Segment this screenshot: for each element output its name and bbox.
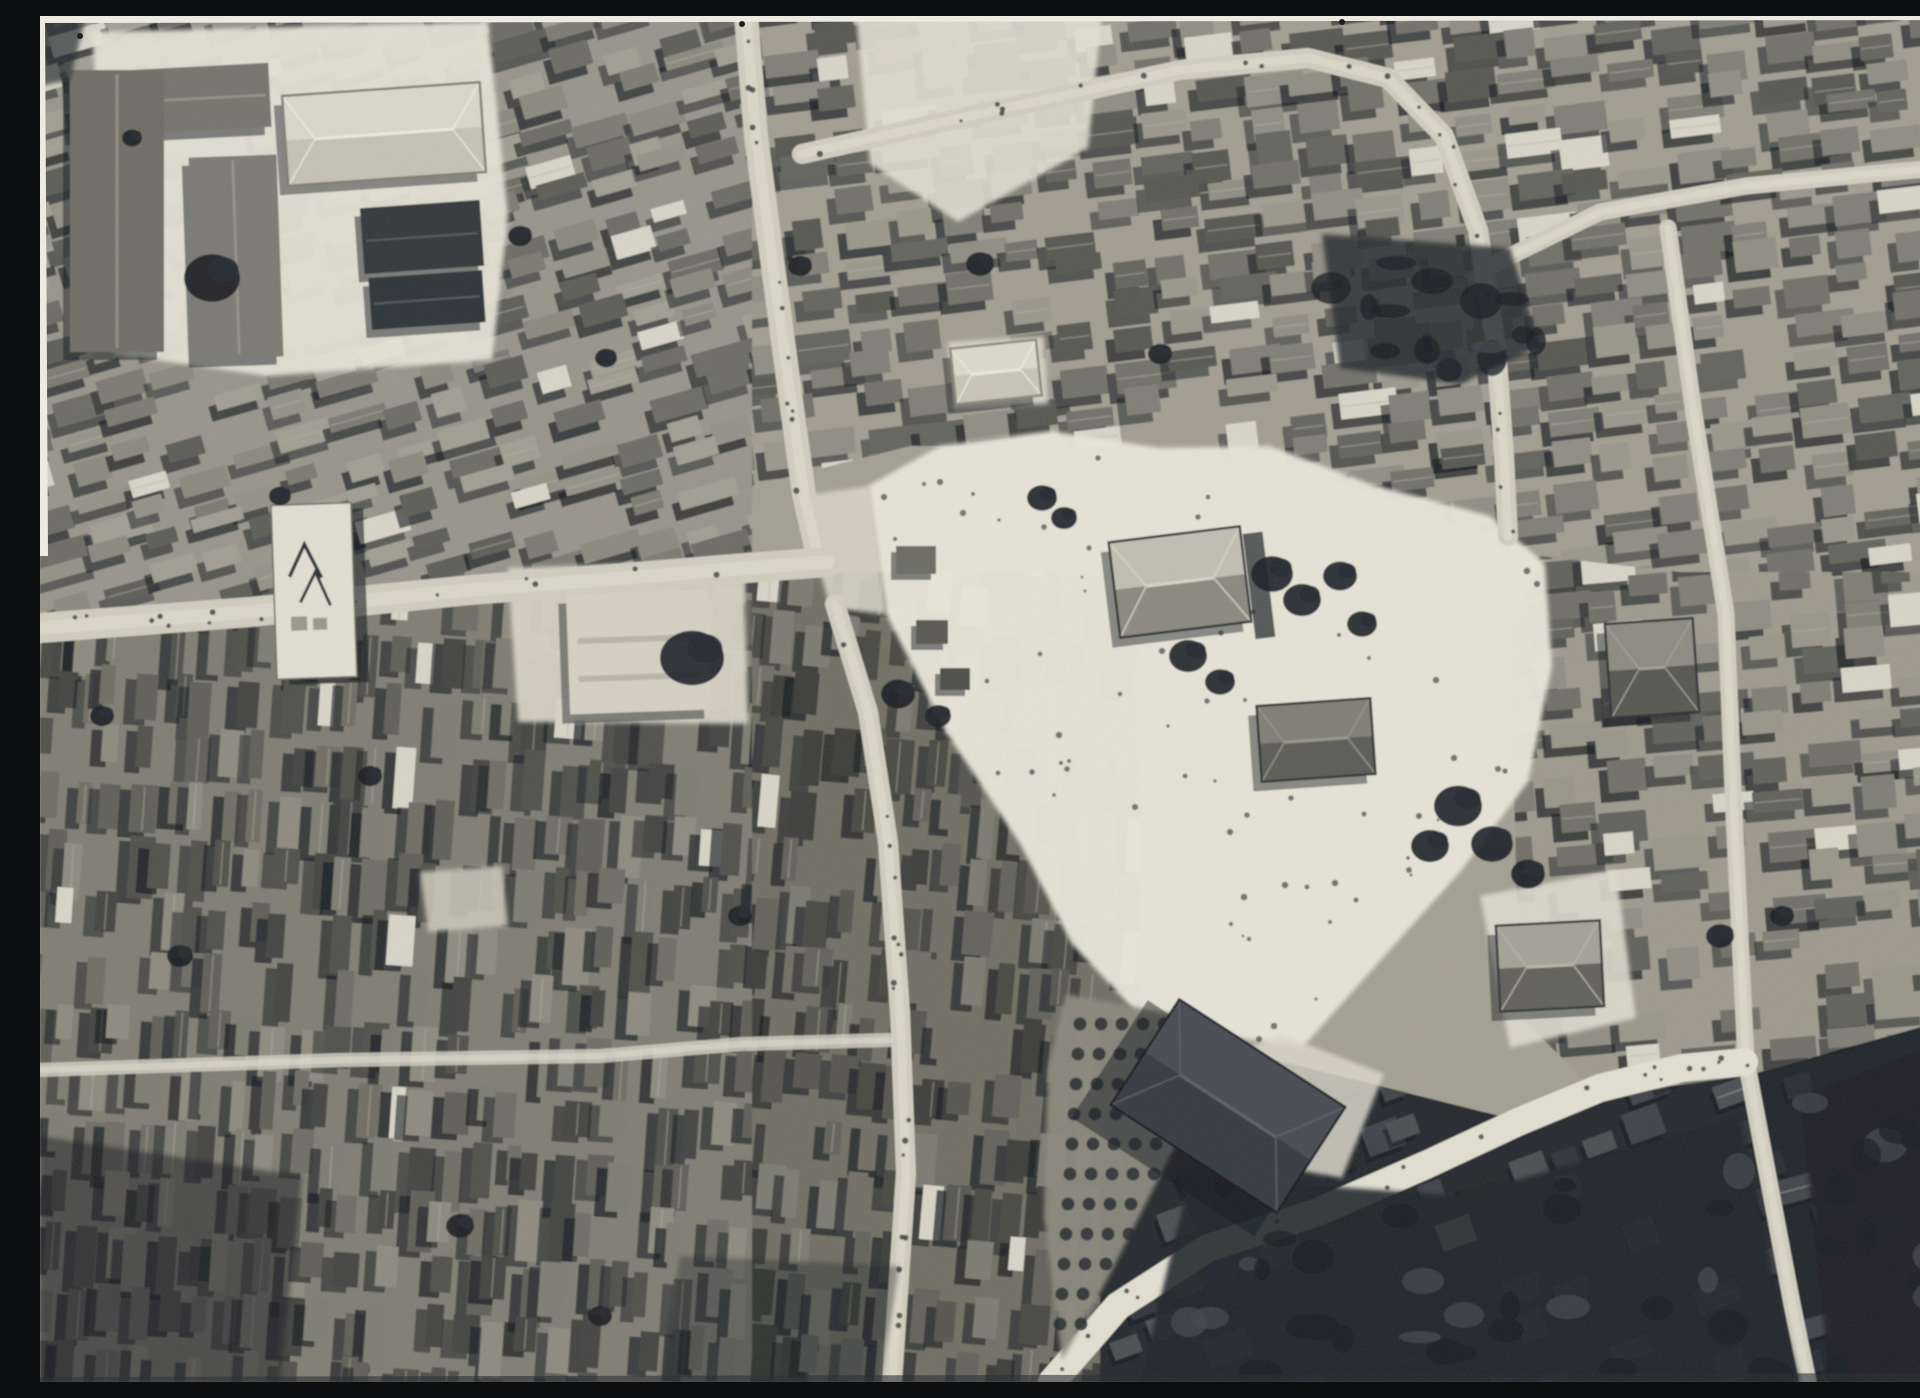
film-grain-light (40, 16, 1920, 1382)
aerial-photo-canvas (40, 16, 1920, 1382)
aerial-photograph: Black-and-white vertical aerial photogra… (40, 16, 1920, 1382)
aerial-photo-svg (40, 16, 1920, 1382)
